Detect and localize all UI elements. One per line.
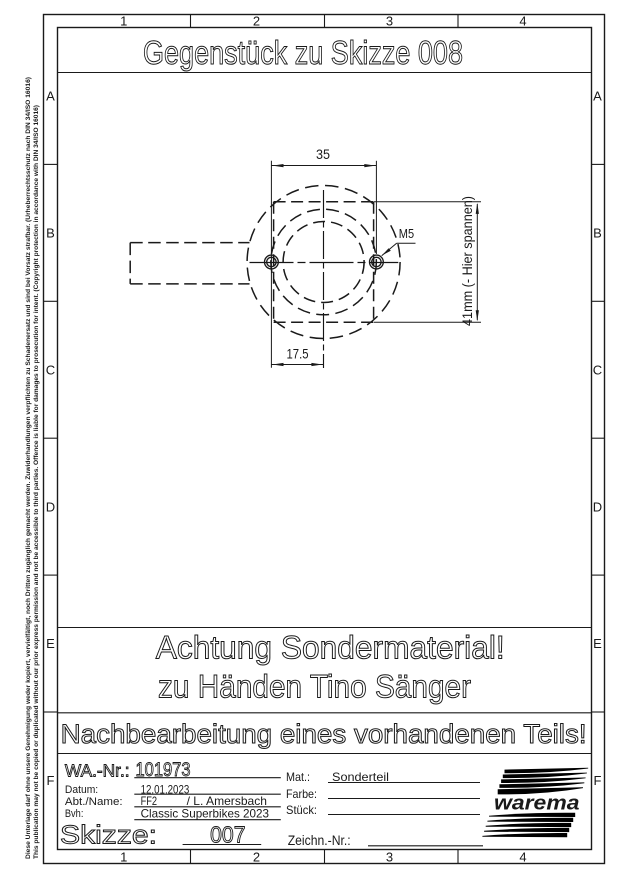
svg-text:zu Händen Tino Sänger: zu Händen Tino Sänger bbox=[158, 668, 471, 704]
svg-text:D: D bbox=[593, 500, 602, 515]
svg-text:Abt./Name:: Abt./Name: bbox=[65, 796, 123, 808]
svg-text:WA.-Nr.:: WA.-Nr.: bbox=[65, 761, 130, 781]
svg-text:A: A bbox=[593, 89, 602, 104]
svg-text:E: E bbox=[593, 636, 602, 651]
svg-text:D: D bbox=[46, 500, 55, 515]
svg-text:This publication may not be co: This publication may not be copied or du… bbox=[33, 105, 40, 859]
svg-text:Achtung Sondermaterial!: Achtung Sondermaterial! bbox=[156, 630, 505, 666]
svg-text:35: 35 bbox=[316, 146, 330, 162]
svg-text:Stück:: Stück: bbox=[286, 803, 317, 817]
svg-text:F: F bbox=[47, 773, 55, 788]
svg-text:4: 4 bbox=[519, 850, 526, 865]
svg-text:2: 2 bbox=[253, 14, 260, 29]
svg-text:Zeichn.-Nr.:: Zeichn.-Nr.: bbox=[288, 833, 351, 848]
svg-text:41mm (- Hier spannen): 41mm (- Hier spannen) bbox=[459, 196, 475, 326]
svg-text:1: 1 bbox=[120, 14, 127, 29]
svg-text:1: 1 bbox=[120, 850, 127, 865]
svg-text:Diese Unterlage darf ohne unse: Diese Unterlage darf ohne unsere Genehmi… bbox=[25, 77, 32, 859]
svg-text:Gegenstück zu Skizze 008: Gegenstück zu Skizze 008 bbox=[143, 34, 463, 71]
svg-text:C: C bbox=[593, 363, 602, 378]
svg-text:E: E bbox=[46, 636, 55, 651]
svg-text:M5: M5 bbox=[399, 226, 414, 241]
svg-text:4: 4 bbox=[519, 14, 526, 29]
svg-text:Datum:: Datum: bbox=[65, 784, 98, 796]
svg-text:Nachbearbeitung eines vorhande: Nachbearbeitung eines vorhandenen Teils! bbox=[61, 719, 587, 749]
svg-text:007: 007 bbox=[210, 822, 245, 848]
svg-text:F: F bbox=[594, 773, 602, 788]
svg-text:C: C bbox=[46, 363, 55, 378]
svg-text:Classic Superbikes 2023: Classic Superbikes 2023 bbox=[141, 807, 270, 821]
svg-text:Bvh:: Bvh: bbox=[65, 808, 84, 820]
svg-text:Mat.:: Mat.: bbox=[286, 770, 310, 784]
svg-text:A: A bbox=[46, 89, 55, 104]
svg-text:warema: warema bbox=[494, 792, 580, 815]
svg-text:3: 3 bbox=[386, 850, 393, 865]
svg-text:2: 2 bbox=[253, 850, 260, 865]
svg-text:B: B bbox=[593, 226, 602, 241]
svg-text:Skizze:: Skizze: bbox=[60, 821, 157, 849]
svg-text:Sonderteil: Sonderteil bbox=[332, 770, 389, 784]
svg-text:17.5: 17.5 bbox=[287, 346, 309, 362]
svg-text:3: 3 bbox=[386, 14, 393, 29]
svg-text:B: B bbox=[46, 226, 55, 241]
svg-text:Farbe:: Farbe: bbox=[286, 787, 317, 801]
